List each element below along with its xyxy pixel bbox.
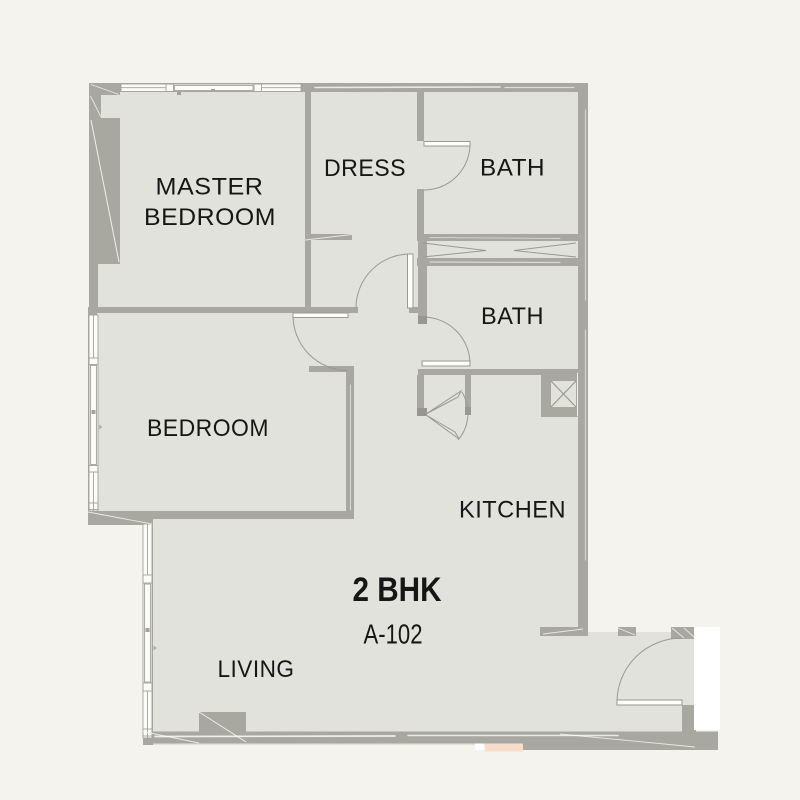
- svg-text:A-102: A-102: [364, 619, 423, 650]
- svg-text:BATH: BATH: [480, 155, 545, 182]
- svg-text:LIVING: LIVING: [218, 656, 295, 683]
- svg-text:MASTER: MASTER: [156, 174, 264, 201]
- svg-text:KITCHEN: KITCHEN: [459, 497, 566, 524]
- svg-text:BEDROOM: BEDROOM: [144, 204, 276, 231]
- svg-text:2 BHK: 2 BHK: [353, 571, 442, 609]
- svg-text:BEDROOM: BEDROOM: [147, 415, 269, 442]
- svg-text:BATH: BATH: [481, 303, 544, 330]
- svg-text:DRESS: DRESS: [324, 155, 406, 182]
